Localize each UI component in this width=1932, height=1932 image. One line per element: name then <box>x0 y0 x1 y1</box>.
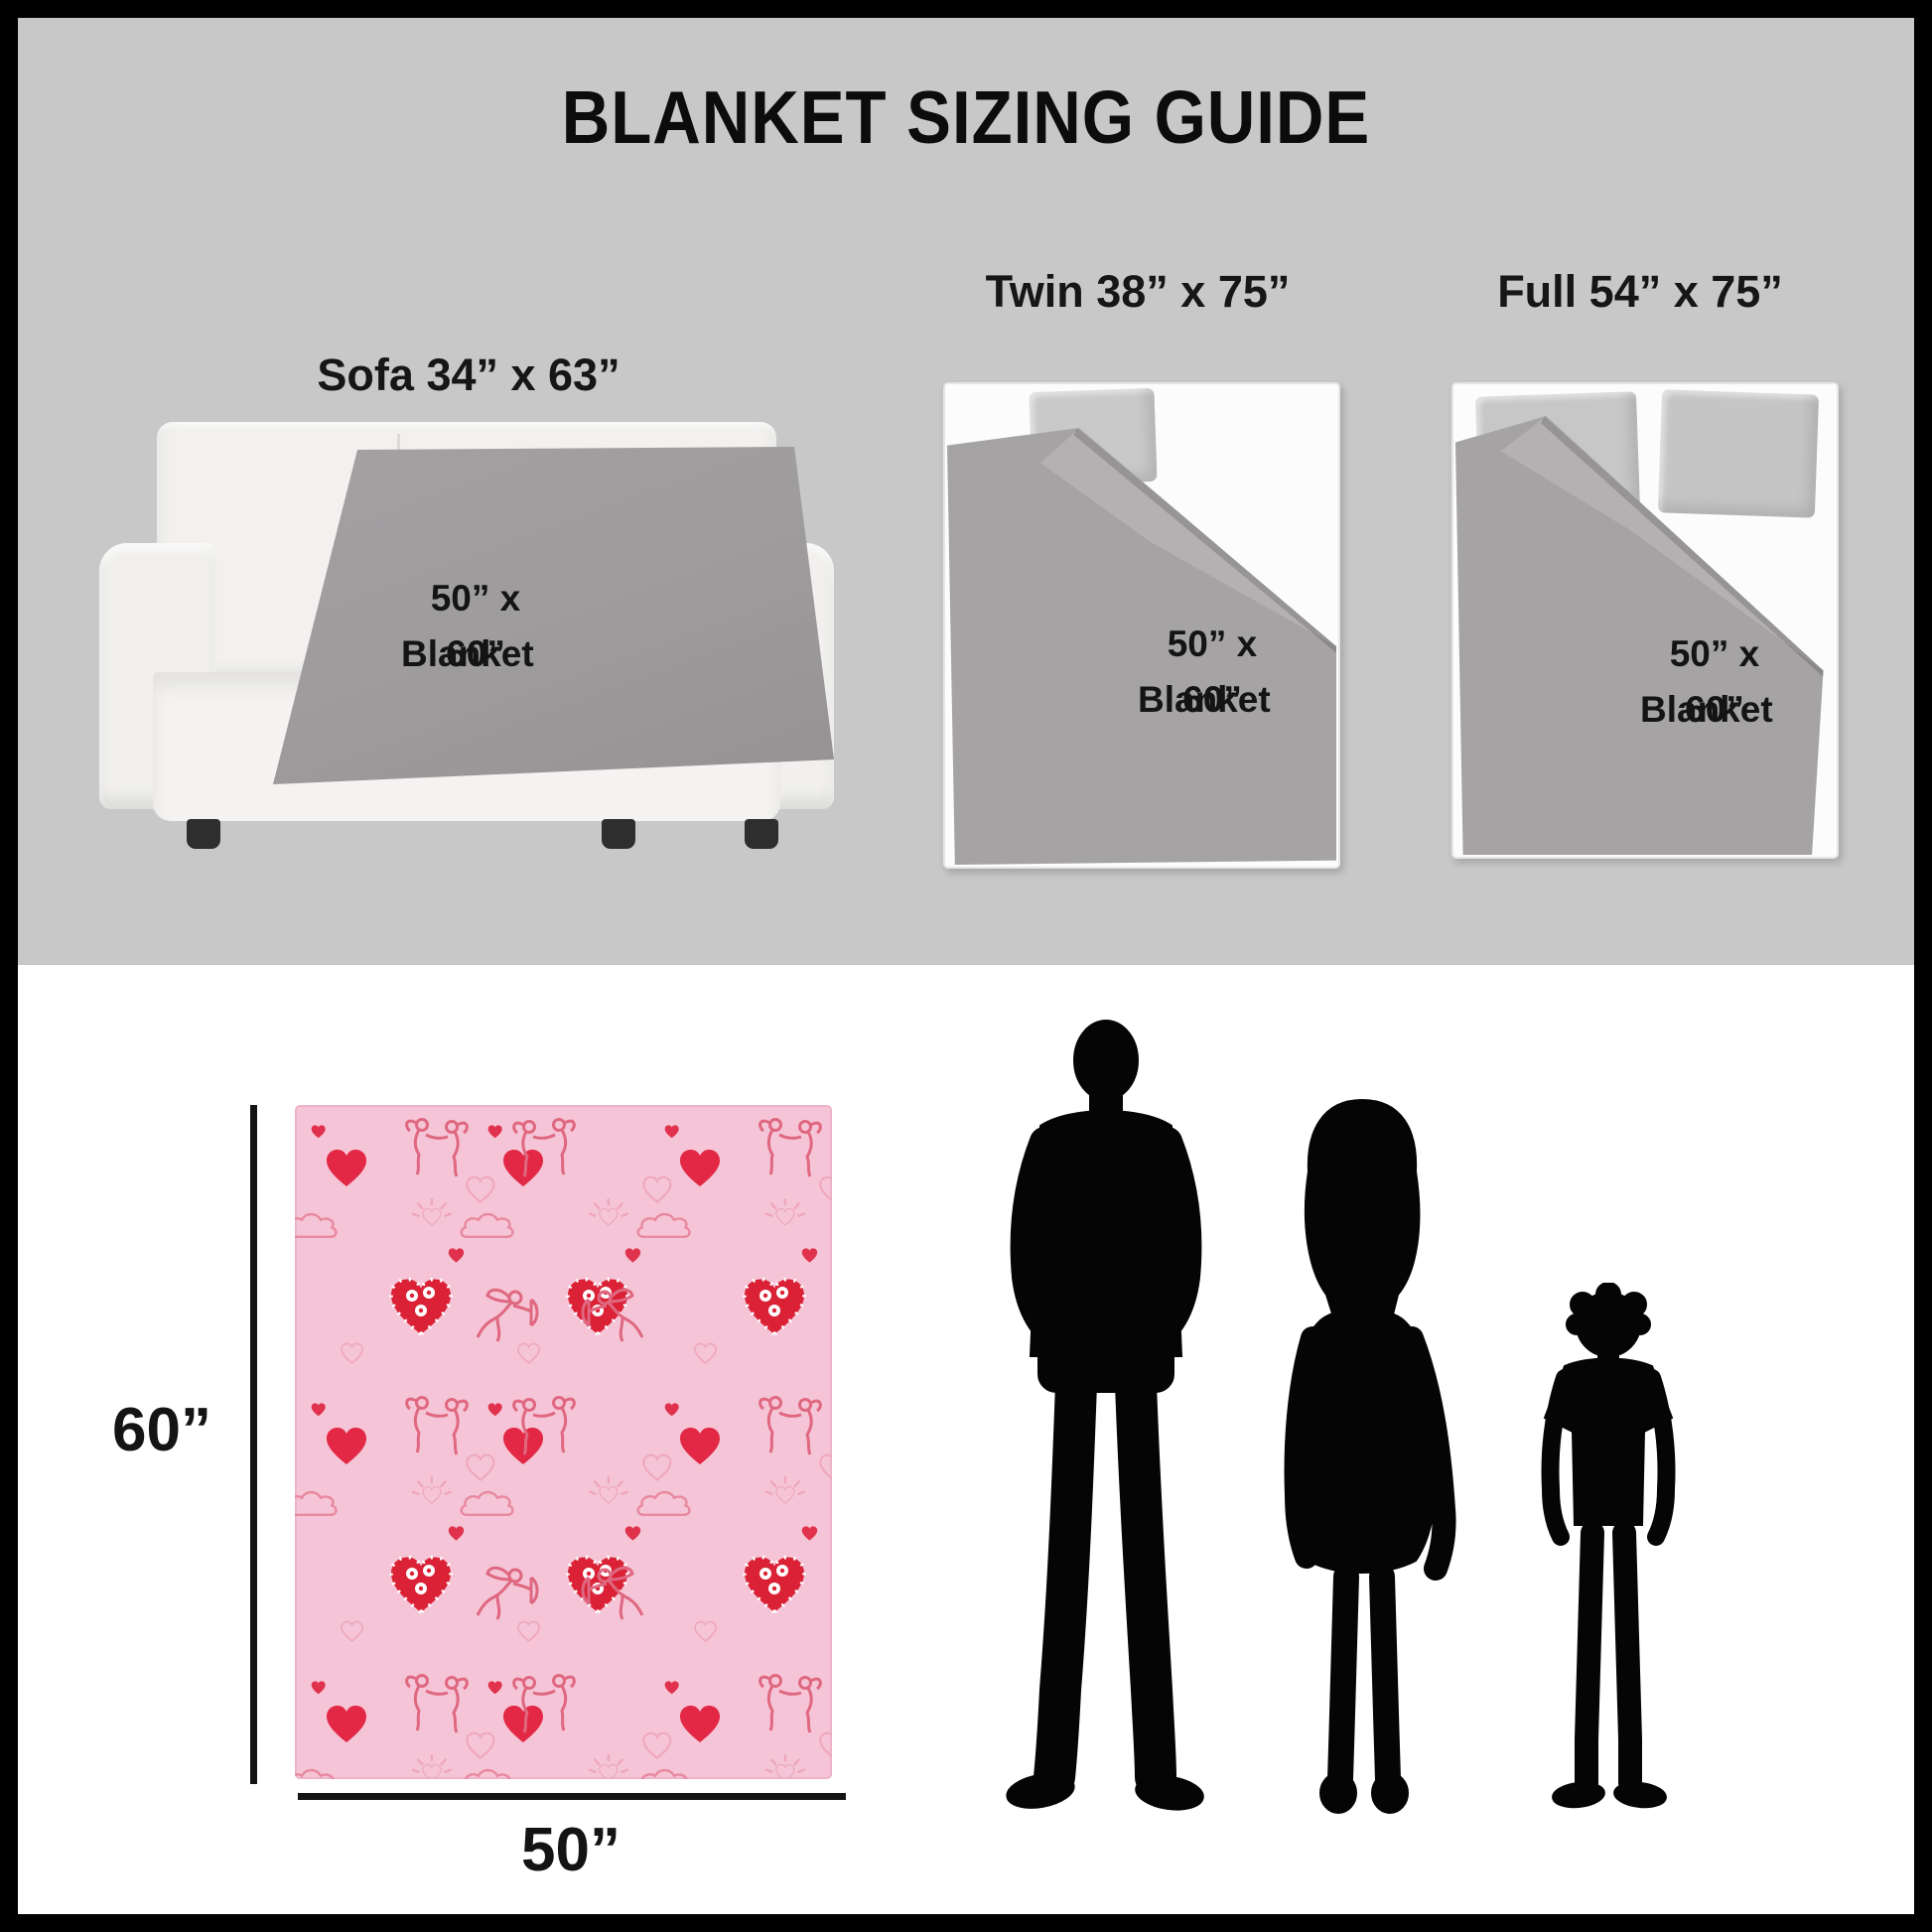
blanket-word-text: Blanket <box>1640 682 1773 738</box>
full-pillow-right <box>1658 389 1819 517</box>
blanket-word-text: Blanket <box>1138 672 1271 728</box>
blanket-sizing-guide: BLANKET SIZING GUIDE Sofa 34” x 63” Twin… <box>0 0 1932 1932</box>
width-dimension-line <box>298 1793 846 1800</box>
pink-blanket-graphic <box>295 1105 832 1779</box>
height-dimension-label: 60” <box>77 1395 246 1465</box>
blanket-word-text: Blanket <box>401 626 534 682</box>
throw-blanket-label: 50” x 60” Blanket <box>252 571 550 626</box>
man-silhouette <box>981 1015 1231 1815</box>
full-size-label: Full 54” x 75” <box>1422 266 1859 318</box>
twin-size-label: Twin 38” x 75” <box>939 266 1336 318</box>
boy-silhouette <box>1517 1283 1696 1811</box>
woman-silhouette <box>1247 1088 1479 1817</box>
sofa-size-label: Sofa 34” x 63” <box>171 349 766 401</box>
height-dimension-line <box>250 1105 257 1784</box>
sofa-foot <box>187 819 220 849</box>
twin-blanket-label: 50” x 60” Blanket <box>989 617 1287 672</box>
twin-bed-illustration: 50” x 60” Blanket <box>943 382 1340 869</box>
page-title: BLANKET SIZING GUIDE <box>39 74 1893 160</box>
sofa-illustration: 50” x 60” Blanket <box>99 422 834 829</box>
full-bed-illustration: 50” x 60” Blanket <box>1451 382 1839 859</box>
sofa-foot <box>602 819 635 849</box>
width-dimension-label: 50” <box>486 1815 655 1885</box>
full-blanket-label: 50” x 60” Blanket <box>1491 626 1789 682</box>
sofa-foot <box>745 819 778 849</box>
